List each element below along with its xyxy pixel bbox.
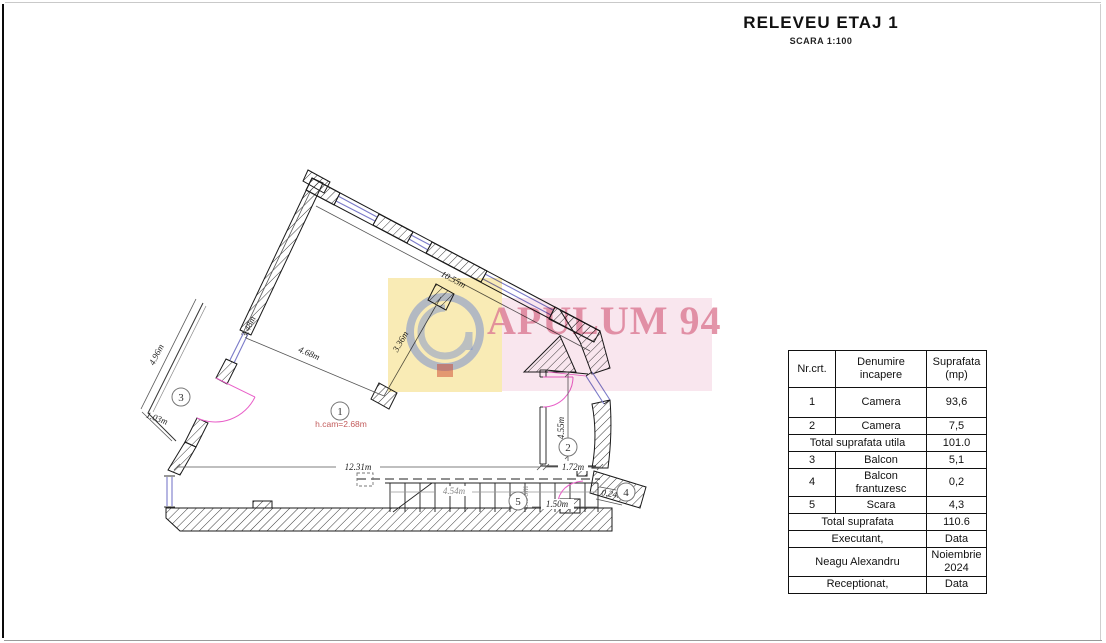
room-5-label: 5 — [515, 496, 521, 508]
page-border-top — [5, 2, 1101, 3]
executant-name: Neagu Alexandru — [789, 548, 927, 576]
table-executant-name-row: Neagu Alexandru Noiembrie 2024 — [789, 548, 987, 576]
cell-area: 0,2 — [927, 469, 987, 497]
room-2-label: 2 — [565, 442, 571, 454]
dim-room2-height: 4.55m — [556, 416, 566, 439]
dim-balcony-length: 4.96m — [147, 342, 166, 367]
executant-label: Executant, — [789, 531, 927, 548]
floor-plan-svg: 10.55m 3.48m 4.68m 3.36m 4.96m 1.03m 12.… — [130, 160, 650, 550]
cell-area: 93,6 — [927, 388, 987, 418]
table-total-utila-row: Total suprafata utila 101.0 — [789, 435, 987, 452]
total-utila-value: 101.0 — [927, 435, 987, 452]
table-row: 2 Camera 7,5 — [789, 418, 987, 435]
area-table-container: Nr.crt. Denumire incapere Suprafata (mp)… — [788, 350, 987, 594]
header-denumire-line1: Denumire — [838, 356, 924, 369]
area-table: Nr.crt. Denumire incapere Suprafata (mp)… — [788, 350, 987, 594]
receptionat-data-label: Data — [927, 576, 987, 593]
cell-area: 7,5 — [927, 418, 987, 435]
page-border-left — [2, 4, 4, 638]
room-3-label: 3 — [178, 392, 184, 404]
cell-no: 2 — [789, 418, 836, 435]
executant-date: Noiembrie 2024 — [927, 548, 987, 576]
windows — [167, 196, 610, 506]
table-executant-row: Executant, Data — [789, 531, 987, 548]
room-1-label: 1 — [337, 406, 343, 418]
cell-name: Camera — [836, 388, 927, 418]
table-total-row: Total suprafata 110.6 — [789, 514, 987, 531]
cell-name: Camera — [836, 418, 927, 435]
header-suprafata-line2: (mp) — [929, 369, 984, 382]
header-denumire: Denumire incapere — [836, 351, 927, 388]
cell-area: 4,3 — [927, 497, 987, 514]
total-utila-label: Total suprafata utila — [789, 435, 927, 452]
header-nr-crt: Nr.crt. — [789, 351, 836, 388]
dim-bottom-right: 1.50m — [546, 499, 569, 509]
cell-name: Balcon frantuzesc — [836, 469, 927, 497]
table-row: 5 Scara 4,3 — [789, 497, 987, 514]
cell-name: Balcon — [836, 452, 927, 469]
exterior-walls — [166, 170, 646, 531]
dim-wall-to-pillar: 4.68m — [297, 344, 322, 362]
dim-room2-width: 1.72m — [562, 462, 585, 472]
table-header-row: Nr.crt. Denumire incapere Suprafata (mp) — [789, 351, 987, 388]
page-border-bottom — [4, 640, 1102, 641]
cell-no: 1 — [789, 388, 836, 418]
ceiling-height-note: h.cam=2.68m — [315, 419, 367, 429]
table-row: 3 Balcon 5,1 — [789, 452, 987, 469]
table-row: 4 Balcon frantuzesc 0,2 — [789, 469, 987, 497]
cell-name: Scara — [836, 497, 927, 514]
executant-data-label: Data — [927, 531, 987, 548]
header-suprafata-line1: Suprafata — [929, 356, 984, 369]
cell-no: 5 — [789, 497, 836, 514]
room2-walls — [540, 370, 546, 464]
receptionat-label: Receptionat, — [789, 576, 927, 593]
header-suprafata: Suprafata (mp) — [927, 351, 987, 388]
page: { "page": { "title": "RELEVEU ETAJ 1", "… — [0, 0, 1106, 643]
dim-balcony-width: 1.03m — [145, 410, 170, 427]
room2-door-arc — [543, 377, 573, 407]
balcony-door-arc — [197, 397, 255, 422]
total-label: Total suprafata — [789, 514, 927, 531]
room-4-label: 4 — [623, 487, 629, 499]
dim-room1-width: 12.31m — [345, 462, 372, 472]
dim-pillar-to-pillar: 3.36m — [390, 329, 411, 355]
table-receptionat-row: Receptionat, Data — [789, 576, 987, 593]
cell-no: 3 — [789, 452, 836, 469]
page-border-right — [1100, 4, 1101, 640]
table-row: 1 Camera 93,6 — [789, 388, 987, 418]
header-denumire-line2: incapere — [838, 369, 924, 382]
cell-no: 4 — [789, 469, 836, 497]
page-title: RELEVEU ETAJ 1 — [700, 13, 942, 33]
dim-stairs-length: 4.54m — [443, 486, 466, 496]
title-block: RELEVEU ETAJ 1 SCARA 1:100 — [700, 13, 942, 46]
total-value: 110.6 — [927, 514, 987, 531]
window-caps — [164, 193, 610, 507]
drawing-scale: SCARA 1:100 — [700, 36, 942, 46]
cell-area: 5,1 — [927, 452, 987, 469]
